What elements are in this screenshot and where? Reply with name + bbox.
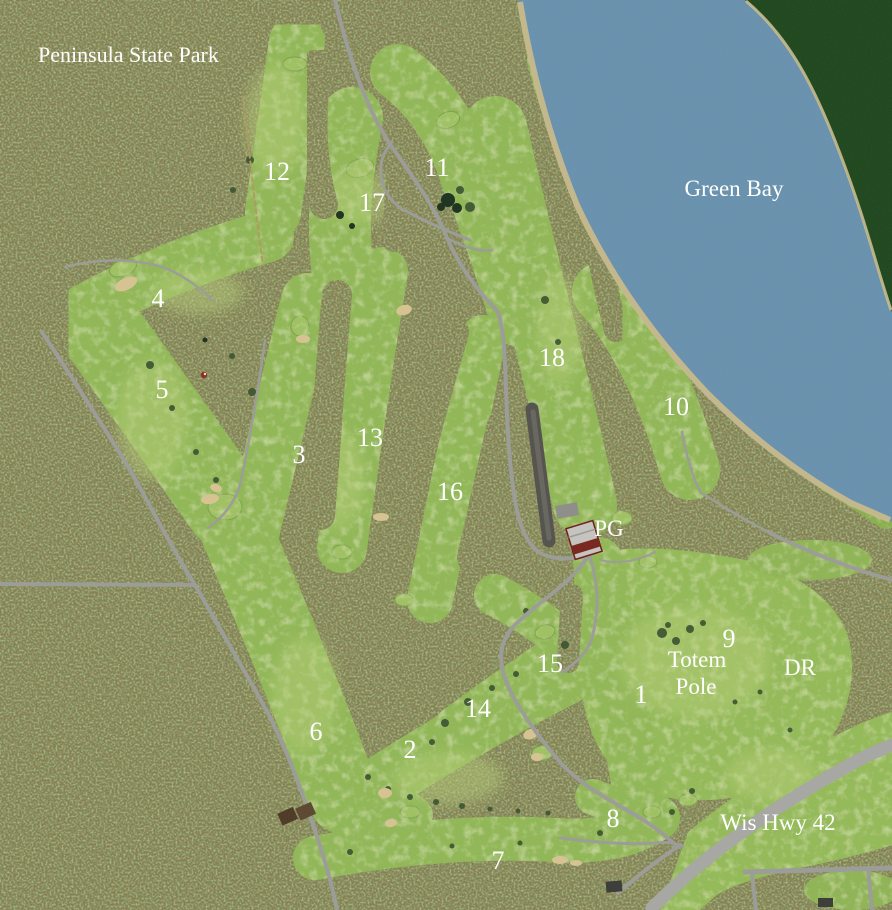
driving-range-label: DR [784, 655, 817, 680]
hole-11-label: 11 [424, 153, 449, 182]
totem-pole-label-line1: Totem [668, 647, 727, 672]
park-map: Peninsula State Park Green Bay 1 2 3 4 5… [0, 0, 892, 910]
hole-15-label: 15 [537, 649, 563, 678]
hole-16-label: 16 [437, 477, 463, 506]
screenshot-root: Peninsula State Park Green Bay 1 2 3 4 5… [0, 0, 892, 910]
highway-label: Wis Hwy 42 [720, 810, 835, 835]
hole-14-label: 14 [465, 694, 491, 723]
hole-7-label: 7 [492, 846, 505, 875]
hole-10-label: 10 [663, 392, 689, 421]
totem-pole-label-line2: Pole [676, 674, 717, 699]
hole-18-label: 18 [539, 343, 565, 372]
hole-2-label: 2 [404, 735, 417, 764]
hole-6-label: 6 [310, 717, 323, 746]
park-name-label: Peninsula State Park [38, 42, 219, 67]
hole-8-label: 8 [607, 804, 620, 833]
hole-13-label: 13 [357, 423, 383, 452]
hole-17-label: 17 [359, 188, 385, 217]
pro-shop-label: PG [594, 516, 623, 541]
hole-3-label: 3 [293, 440, 306, 469]
hole-12-label: 12 [264, 157, 290, 186]
hole-4-label: 4 [152, 284, 165, 313]
photo-grain [0, 0, 892, 910]
water-name-label: Green Bay [685, 176, 784, 201]
hole-1-label: 1 [635, 680, 648, 709]
hole-5-label: 5 [156, 375, 169, 404]
